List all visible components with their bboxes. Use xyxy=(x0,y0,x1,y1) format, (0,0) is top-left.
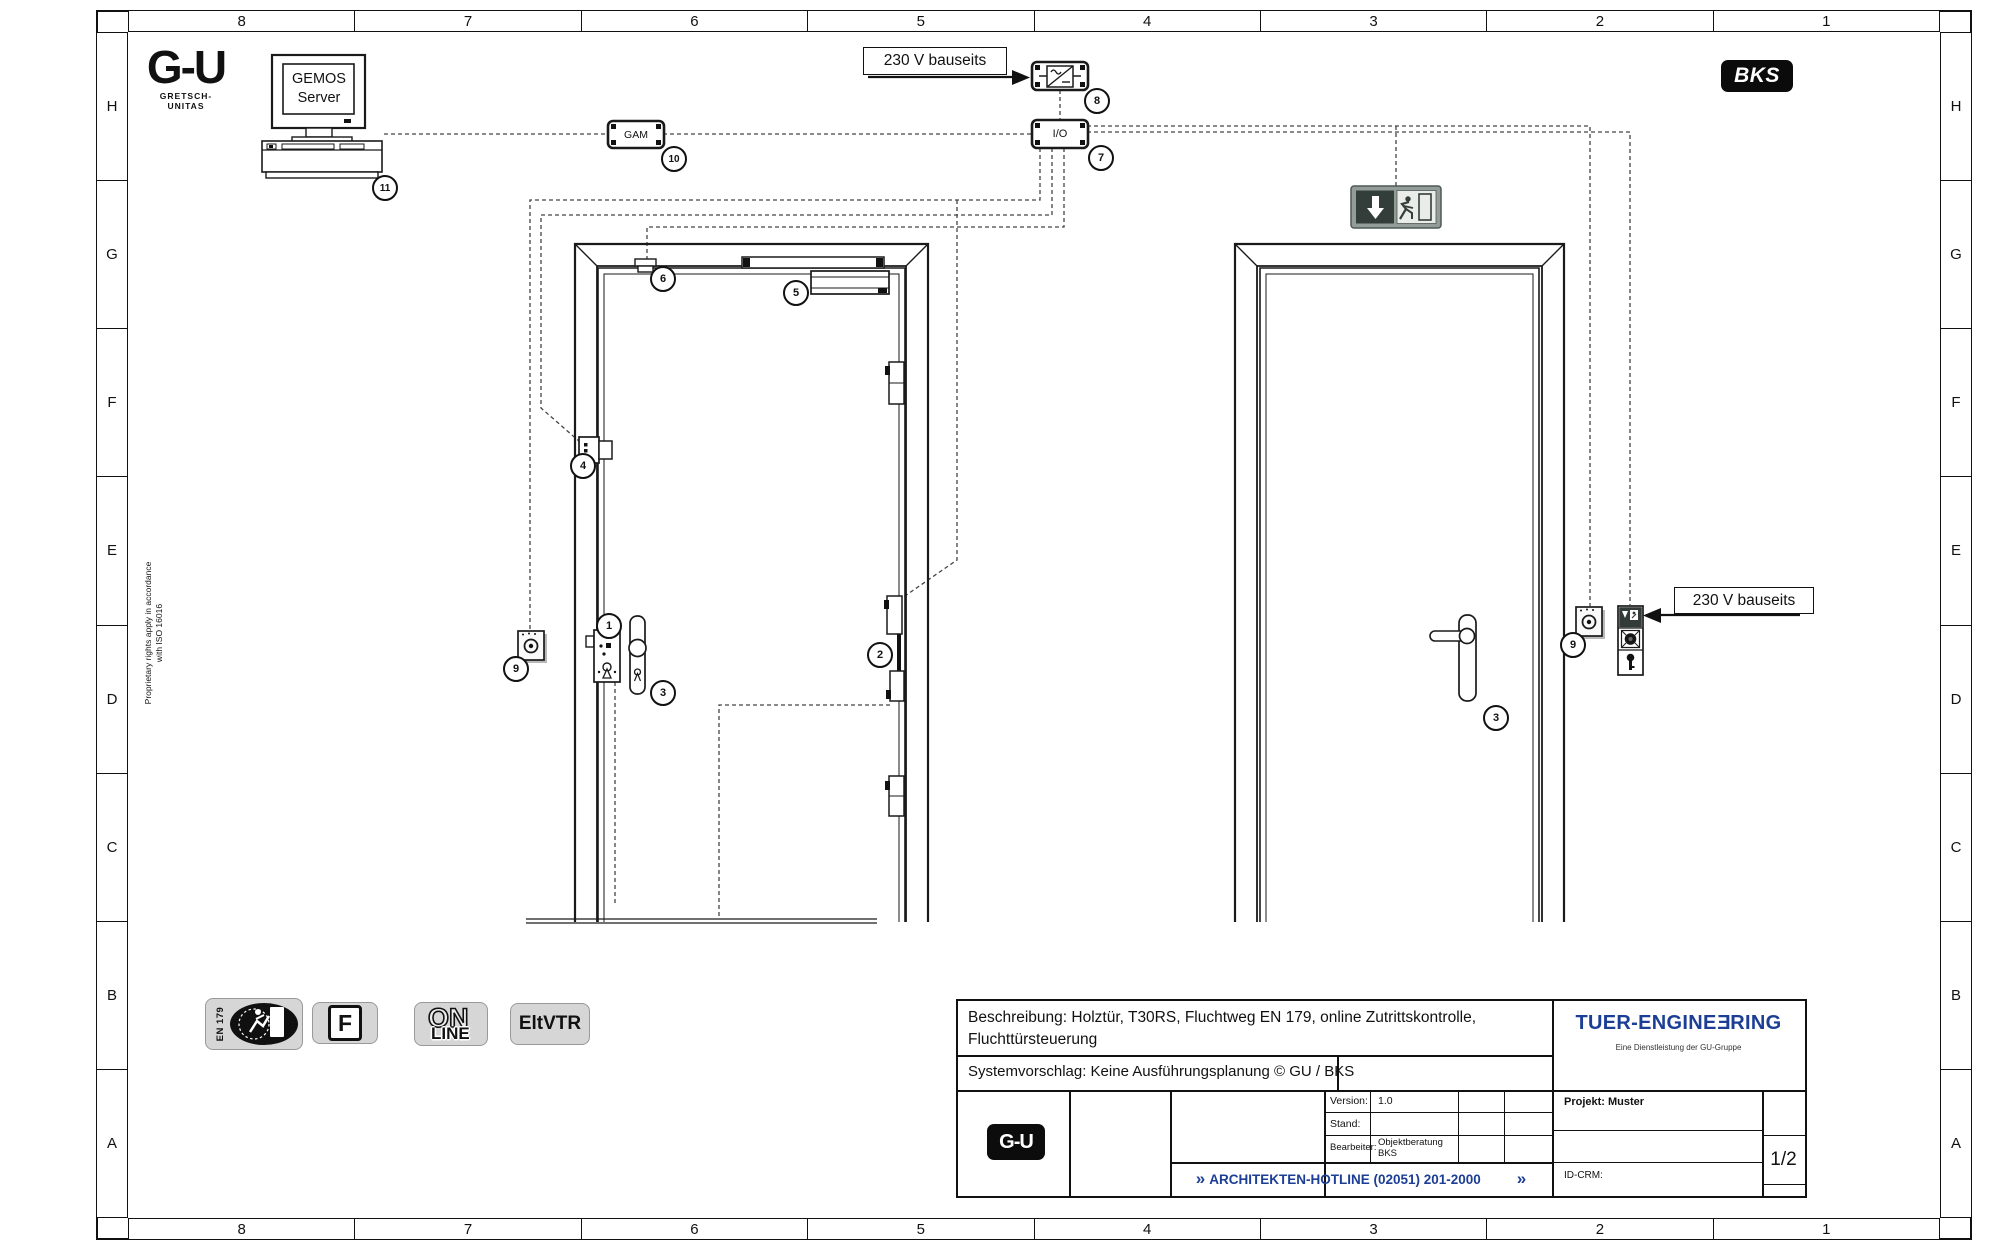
callout-3: 3 xyxy=(650,680,676,706)
reversed-e-glyph: E xyxy=(1717,1012,1731,1035)
gu-small-logo: G-U xyxy=(987,1124,1045,1160)
brand-logo: TUER-ENGINEERING Eine Dienstleistung der… xyxy=(1554,1012,1803,1052)
door-closer-icon xyxy=(742,257,889,294)
bearbeiter-label: Bearbeiter: xyxy=(1330,1142,1376,1153)
callout-2: 2 xyxy=(867,642,893,668)
gemos-server-label: GEMOS Server xyxy=(284,66,354,112)
power-supply-icon xyxy=(1032,62,1088,90)
chevron-icon: » xyxy=(1517,1169,1526,1189)
lever-handle-icon xyxy=(1430,615,1476,701)
callout-4: 4 xyxy=(570,453,596,479)
en179-pictogram xyxy=(206,999,302,1049)
io-label: I/O xyxy=(1032,120,1088,148)
callout-3-right: 3 xyxy=(1483,705,1509,731)
connection-lines xyxy=(384,90,1630,917)
project-field: Projekt: Muster xyxy=(1564,1096,1644,1108)
callout-1: 1 xyxy=(596,613,622,639)
callout-6: 6 xyxy=(650,266,676,292)
escape-door-terminal-icon xyxy=(1618,606,1643,675)
bks-logo: BKS xyxy=(1721,60,1793,92)
eltvtr-badge: EltVTR xyxy=(510,1003,590,1045)
door-sill xyxy=(526,919,877,923)
chevron-icon: » xyxy=(1196,1169,1205,1189)
power-label-right: 230 V bauseits xyxy=(1674,587,1814,614)
hotline-text: ARCHITEKTEN-HOTLINE (02051) 201-2000 xyxy=(1209,1172,1481,1187)
en179-badge: EN 179 xyxy=(205,998,303,1050)
fire-rating-badge: F xyxy=(312,1002,378,1044)
key-icon xyxy=(1627,654,1635,662)
hotline-bar: » ARCHITEKTEN-HOTLINE (02051) 201-2000 » xyxy=(1170,1164,1552,1194)
ac-symbol xyxy=(1051,70,1061,74)
callout-8: 8 xyxy=(1084,88,1110,114)
exit-sign xyxy=(1351,186,1441,228)
callout-7: 7 xyxy=(1088,145,1114,171)
callout-11: 11 xyxy=(372,175,398,201)
callout-9-right: 9 xyxy=(1560,632,1586,658)
version-value: 1.0 xyxy=(1378,1095,1393,1107)
callout-9-left: 9 xyxy=(503,656,529,682)
online-badge: ON LINE xyxy=(414,1002,488,1046)
system-proposal-text: Systemvorschlag: Keine Ausführungsplanun… xyxy=(968,1063,1354,1080)
right-door xyxy=(1235,244,1564,922)
id-crm-field: ID-CRM: xyxy=(1564,1170,1603,1181)
page-number: 1/2 xyxy=(1762,1135,1805,1184)
bearbeiter-value: Objektberatung BKS xyxy=(1378,1138,1456,1160)
online-badge-bottom: LINE xyxy=(431,1027,470,1041)
left-door xyxy=(526,244,928,923)
title-block: Beschreibung: Holztür, T30RS, Fluchtweg … xyxy=(956,999,1807,1198)
brand-wordmark: TUER-ENGINEERING xyxy=(1576,1012,1782,1035)
callout-10: 10 xyxy=(661,146,687,172)
fire-rating-letter: F xyxy=(328,1005,362,1041)
locking-points xyxy=(884,362,904,816)
gam-label: GAM xyxy=(608,121,664,148)
brand-subline: Eine Dienstleistung der GU-Gruppe xyxy=(1616,1043,1742,1052)
description-text: Beschreibung: Holztür, T30RS, Fluchtweg … xyxy=(968,1007,1543,1052)
version-label: Version: xyxy=(1330,1095,1368,1107)
gu-logo: G-U GRETSCH-UNITAS xyxy=(144,46,228,111)
power-label-top: 230 V bauseits xyxy=(863,47,1007,75)
proprietary-notice: Proprietary rights apply in accordance w… xyxy=(143,553,167,713)
knob-handle-icon xyxy=(629,616,646,694)
callout-5: 5 xyxy=(783,280,809,306)
stand-label: Stand: xyxy=(1330,1118,1360,1130)
gu-logo-subtext: GRETSCH-UNITAS xyxy=(144,91,228,111)
gu-logo-text: G-U xyxy=(147,46,225,88)
